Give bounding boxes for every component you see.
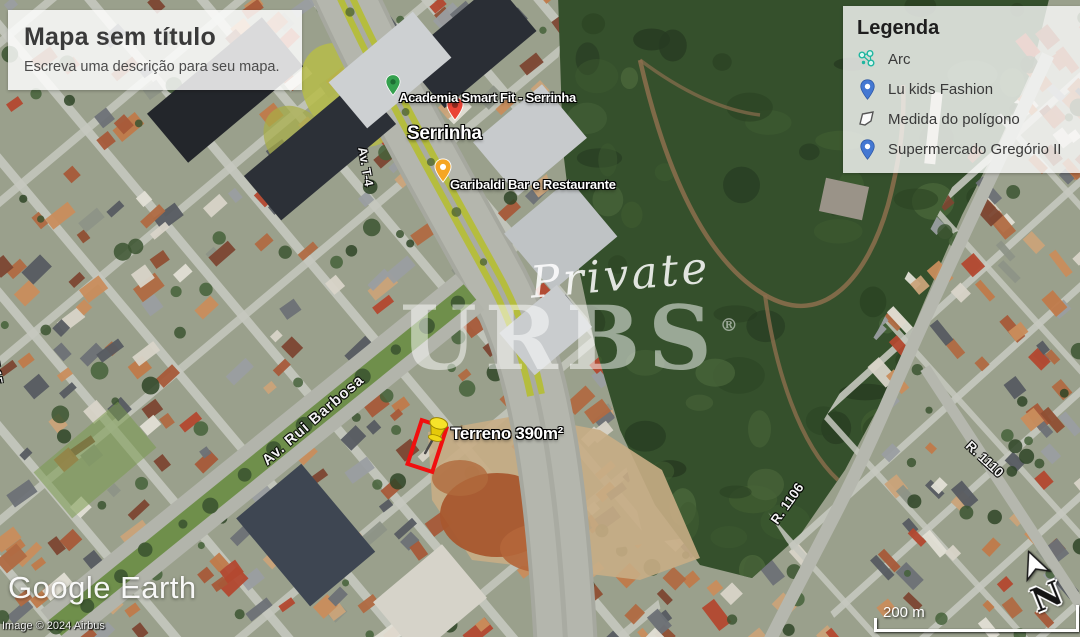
blue-pin-icon xyxy=(857,78,877,100)
label-garibaldi-restaurante: Garibaldi Bar e Restaurante xyxy=(450,177,616,192)
legend-item-supermercado-gregorio[interactable]: Supermercado Gregório II xyxy=(857,138,1066,160)
legend-title: Legenda xyxy=(857,17,1066,40)
label-terreno-area: Terreno 390m² xyxy=(451,424,563,444)
legend-card: Legenda Arc Lu kids Fashion xyxy=(843,6,1080,173)
scale-bar-label: 200 m xyxy=(883,604,925,621)
map-title-card[interactable]: Mapa sem título Escreva uma descrição pa… xyxy=(8,10,302,90)
scale-bar-left-tick xyxy=(874,618,877,632)
label-academia-smart-fit: Academia Smart Fit - Serrinha xyxy=(399,90,576,105)
legend-item-lu-kids-fashion[interactable]: Lu kids Fashion xyxy=(857,78,1066,100)
polygon-measure-icon xyxy=(857,108,877,130)
map-description-placeholder[interactable]: Escreva uma descrição para seu mapa. xyxy=(24,59,286,75)
legend-item-label: Supermercado Gregório II xyxy=(888,141,1061,158)
legend-item-arc[interactable]: Arc xyxy=(857,48,1066,70)
legend-item-label: Lu kids Fashion xyxy=(888,81,993,98)
blue-pin-icon xyxy=(857,138,877,160)
arc-cluster-icon xyxy=(857,48,877,70)
label-serrinha: Serrinha xyxy=(407,123,482,145)
scale-bar-line xyxy=(874,629,1079,632)
legend-item-label: Arc xyxy=(888,51,911,68)
google-earth-logo: Google Earth xyxy=(8,570,197,606)
map-title[interactable]: Mapa sem título xyxy=(24,23,286,52)
legend-item-label: Medida do polígono xyxy=(888,111,1020,128)
google-earth-map-view: Private URBS® Serrinha Academia Smart Fi… xyxy=(0,0,1080,637)
imagery-credit: Image © 2024 Airbus xyxy=(2,620,105,632)
legend-item-medida-poligono[interactable]: Medida do polígono xyxy=(857,108,1066,130)
scale-bar-right-tick xyxy=(1076,605,1079,632)
